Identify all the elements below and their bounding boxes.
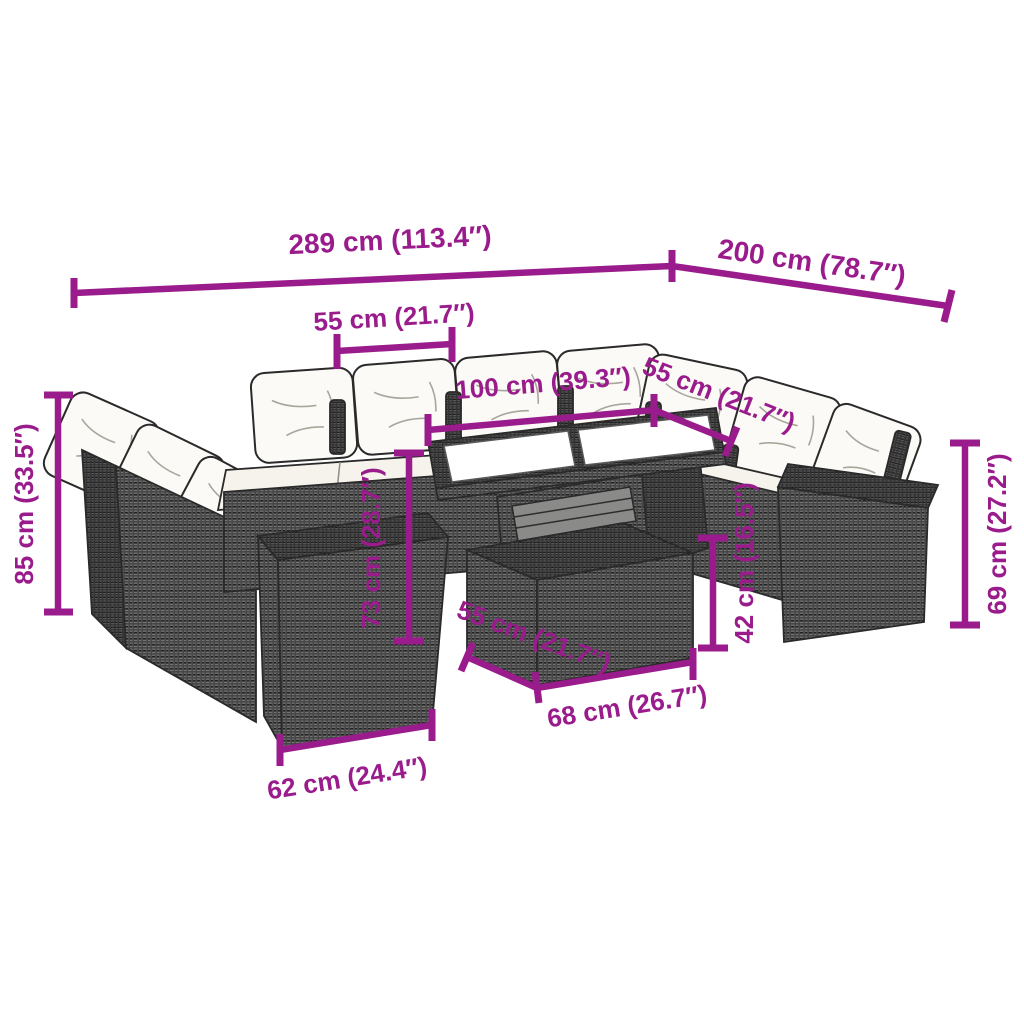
dim-side-table-height: 69 cm (27.2″) [950, 443, 1012, 625]
dim-overall-depth: 200 cm (78.7″) [672, 233, 952, 322]
dim-label-side-table-height: 69 cm (27.2″) [982, 453, 1012, 614]
dim-label-overall-depth: 200 cm (78.7″) [716, 233, 908, 291]
dim-line [337, 344, 452, 351]
dim-label-ottoman-height: 42 cm (16.5″) [729, 482, 759, 643]
dim-label-side-table-width: 62 cm (24.4″) [265, 751, 429, 806]
dim-line [74, 266, 672, 293]
dim-ticks [944, 290, 952, 322]
dim-label-table-height: 73 cm (28.7″) [356, 467, 386, 628]
furniture-illustration [39, 343, 938, 748]
diagram-canvas: 289 cm (113.4″) 200 cm (78.7″) 55 cm (21… [0, 0, 1024, 1024]
product-dimension-diagram: 289 cm (113.4″) 200 cm (78.7″) 55 cm (21… [0, 0, 1024, 1024]
dim-label-ottoman-depth: 68 cm (26.7″) [545, 679, 709, 734]
dim-label-sofa-height: 85 cm (33.5″) [9, 423, 39, 584]
dim-label-overall-width: 289 cm (113.4″) [288, 220, 493, 260]
armrest-post [330, 400, 345, 454]
dim-seat-width-back: 55 cm (21.7″) [313, 297, 476, 369]
left-side-table [258, 513, 448, 748]
right-side-table [778, 464, 938, 642]
right-side-table-front [778, 487, 928, 642]
dim-overall-width: 289 cm (113.4″) [74, 220, 672, 308]
